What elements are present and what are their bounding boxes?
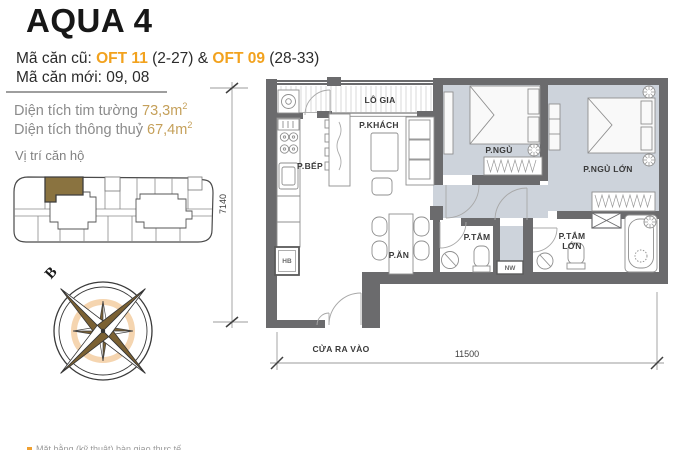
- unit-old-suffix-2: (28-33): [265, 50, 319, 67]
- dimension-horizontal: 11500: [455, 349, 479, 359]
- plant-icon: [643, 86, 655, 98]
- logia-hatch: [281, 86, 431, 112]
- location-map: [14, 177, 213, 242]
- dresser: [549, 104, 560, 150]
- area-gross-sup: 2: [182, 101, 187, 111]
- bathroom-fixtures: [442, 246, 491, 272]
- area-net-sup: 2: [187, 120, 192, 130]
- room-label-logia: LÔ GIA: [364, 94, 395, 105]
- hb-label: HB: [282, 258, 292, 265]
- footnote: Mặt bằng (kỹ thuật) bàn giao thực tế: [27, 444, 181, 450]
- floorplan-page: B: [0, 0, 675, 450]
- page-title: AQUA 4: [26, 2, 152, 40]
- area-gross-value: 73,3m: [142, 103, 182, 119]
- unit-old-suffix-1: (2-27): [148, 50, 194, 67]
- dining-set: [372, 214, 429, 274]
- dimension-vertical: 7140: [218, 194, 228, 214]
- floor-plan: LÔ GIA P.KHÁCH P.BẾP P.ĂN P.NGỦ P.NGỦ LỚ…: [210, 77, 668, 370]
- nw-label: NW: [505, 265, 517, 272]
- room-label-kitchen: P.BẾP: [297, 161, 323, 171]
- master-bathroom-fixtures: [537, 213, 657, 272]
- area-net-value: 67,4m: [147, 122, 187, 138]
- plant-icon: [644, 216, 656, 228]
- tv-cabinet: [329, 114, 350, 186]
- area-net: Diện tích thông thuỷ 67,4m2: [14, 120, 192, 138]
- toilet-icon: [474, 246, 489, 267]
- coffee-table: [371, 133, 398, 171]
- compass-north-label: B: [42, 264, 61, 282]
- room-label-dining: P.ĂN: [389, 250, 409, 260]
- area-gross-label: Diện tích tim tường: [14, 103, 142, 119]
- entrance-label: CỬA RA VÀO: [312, 343, 369, 354]
- unit-code-new: Mã căn mới: 09, 08: [16, 69, 149, 87]
- room-label-bedroom: P.NGỦ: [485, 144, 512, 155]
- location-label: Vị trí căn hộ: [15, 148, 84, 163]
- divider-line: [6, 91, 167, 93]
- unit-old-joiner: &: [193, 50, 212, 67]
- footnote-text: Mặt bằng (kỹ thuật) bàn giao thực tế: [36, 444, 181, 450]
- room-label-living: P.KHÁCH: [359, 120, 399, 130]
- pouf: [372, 178, 392, 195]
- plant-icon: [528, 144, 540, 156]
- desk: [444, 92, 453, 154]
- unit-old-code-1: OFT 11: [96, 50, 148, 67]
- room-label-master-bathroom-1: P.TẮM: [559, 231, 586, 241]
- map-notch: [188, 177, 202, 190]
- room-label-master-bedroom: P.NGỦ LỚN: [583, 163, 632, 174]
- room-label-master-bathroom-2: LỚN: [562, 240, 581, 251]
- unit-old-label: Mã căn cũ:: [16, 50, 96, 67]
- area-gross: Diện tích tim tường 73,3m2: [14, 101, 187, 119]
- dining-table: [389, 214, 413, 274]
- plant-icon: [643, 154, 655, 166]
- area-net-label: Diện tích thông thuỷ: [14, 122, 147, 138]
- unit-code-old: Mã căn cũ: OFT 11 (2-27) & OFT 09 (28-33…: [16, 50, 319, 68]
- map-notch: [105, 177, 120, 191]
- map-core-right: [136, 194, 192, 228]
- compass-rose: B: [42, 264, 152, 380]
- unit-old-code-2: OFT 09: [212, 50, 265, 67]
- room-label-bathroom: P.TẮM: [464, 232, 491, 242]
